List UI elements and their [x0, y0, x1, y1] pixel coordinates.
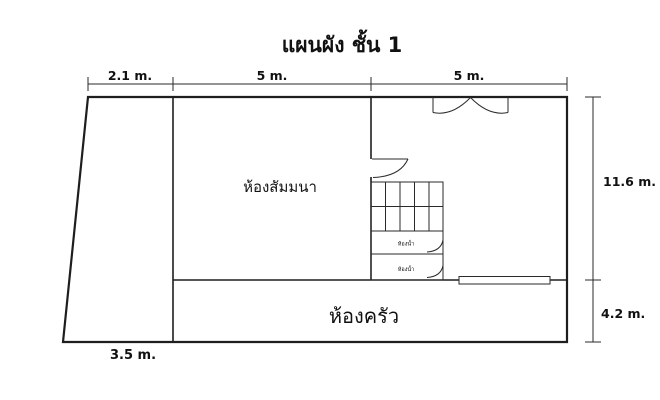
top-dimension-line: 2.1 m. 5 m. 5 m.	[88, 68, 567, 91]
staircase	[371, 182, 443, 231]
dim-label-top-right: 5 m.	[454, 68, 485, 83]
interior-door	[372, 159, 408, 178]
floor-plan-page: แผนผัง ชั้น 1 2.1 m. 5 m. 5 m. 11.6 m. 4…	[0, 0, 660, 400]
floor-plan-canvas: แผนผัง ชั้น 1 2.1 m. 5 m. 5 m. 11.6 m. 4…	[0, 0, 660, 400]
dim-label-right-lower: 4.2 m.	[601, 306, 645, 321]
door-swing-arc	[427, 266, 443, 278]
double-entry-door	[433, 97, 508, 113]
door-swing-arc	[471, 98, 509, 114]
seminar-room-label: ห้องสัมมนา	[243, 178, 317, 196]
page-title: แผนผัง ชั้น 1	[282, 29, 403, 57]
door-swing-arc	[373, 159, 408, 178]
bathroom-upper: ห้องน้ำ	[371, 231, 443, 254]
dim-label-bottom-left: 3.5 m.	[110, 348, 156, 363]
right-dimension-line: 11.6 m. 4.2 m.	[585, 97, 656, 342]
dim-label-top-left: 2.1 m.	[108, 68, 152, 83]
bathroom-label: ห้องน้ำ	[398, 240, 414, 248]
outer-wall	[63, 97, 567, 342]
pass-through-counter	[459, 277, 550, 285]
door-swing-arc	[427, 240, 443, 252]
dim-label-top-middle: 5 m.	[257, 68, 288, 83]
door-swing-arc	[433, 98, 471, 114]
kitchen-label: ห้องครัว	[329, 304, 399, 328]
dim-label-right-upper: 11.6 m.	[603, 174, 656, 189]
bathroom-lower: ห้องน้ำ	[371, 254, 443, 280]
bathroom-label: ห้องน้ำ	[398, 265, 414, 273]
